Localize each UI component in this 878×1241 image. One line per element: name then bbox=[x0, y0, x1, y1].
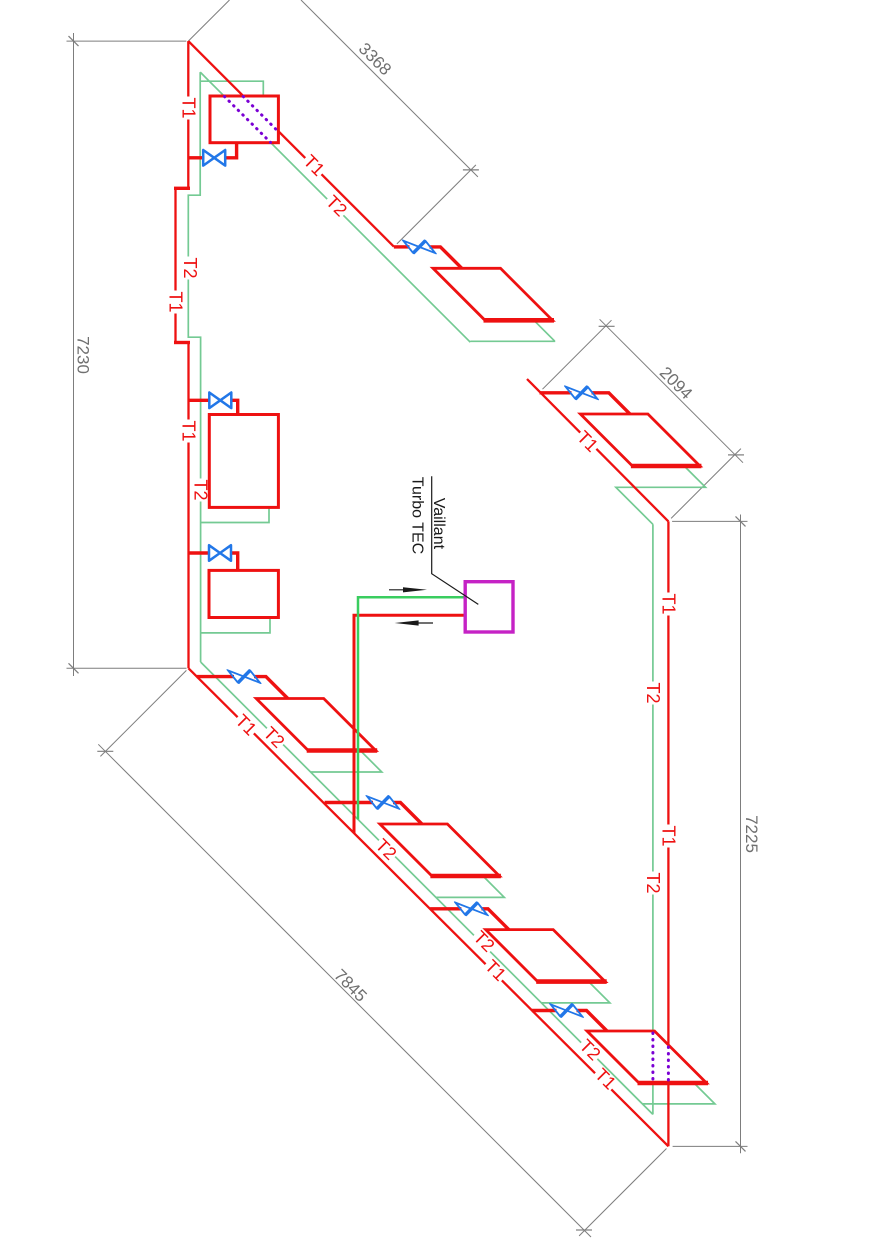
svg-text:T1: T1 bbox=[658, 593, 678, 614]
svg-text:7230: 7230 bbox=[73, 336, 92, 374]
svg-text:T2: T2 bbox=[643, 872, 663, 893]
svg-text:T2: T2 bbox=[191, 479, 211, 500]
svg-text:T1: T1 bbox=[658, 825, 678, 846]
svg-text:T2: T2 bbox=[180, 257, 200, 278]
svg-text:T1: T1 bbox=[166, 291, 186, 312]
svg-text:T2: T2 bbox=[643, 682, 663, 703]
svg-text:T1: T1 bbox=[179, 420, 199, 441]
svg-text:T1: T1 bbox=[178, 97, 198, 118]
svg-text:7225: 7225 bbox=[742, 815, 761, 853]
svg-text:Vaillant: Vaillant bbox=[430, 498, 447, 550]
svg-text:Turbo TEC: Turbo TEC bbox=[409, 477, 426, 554]
